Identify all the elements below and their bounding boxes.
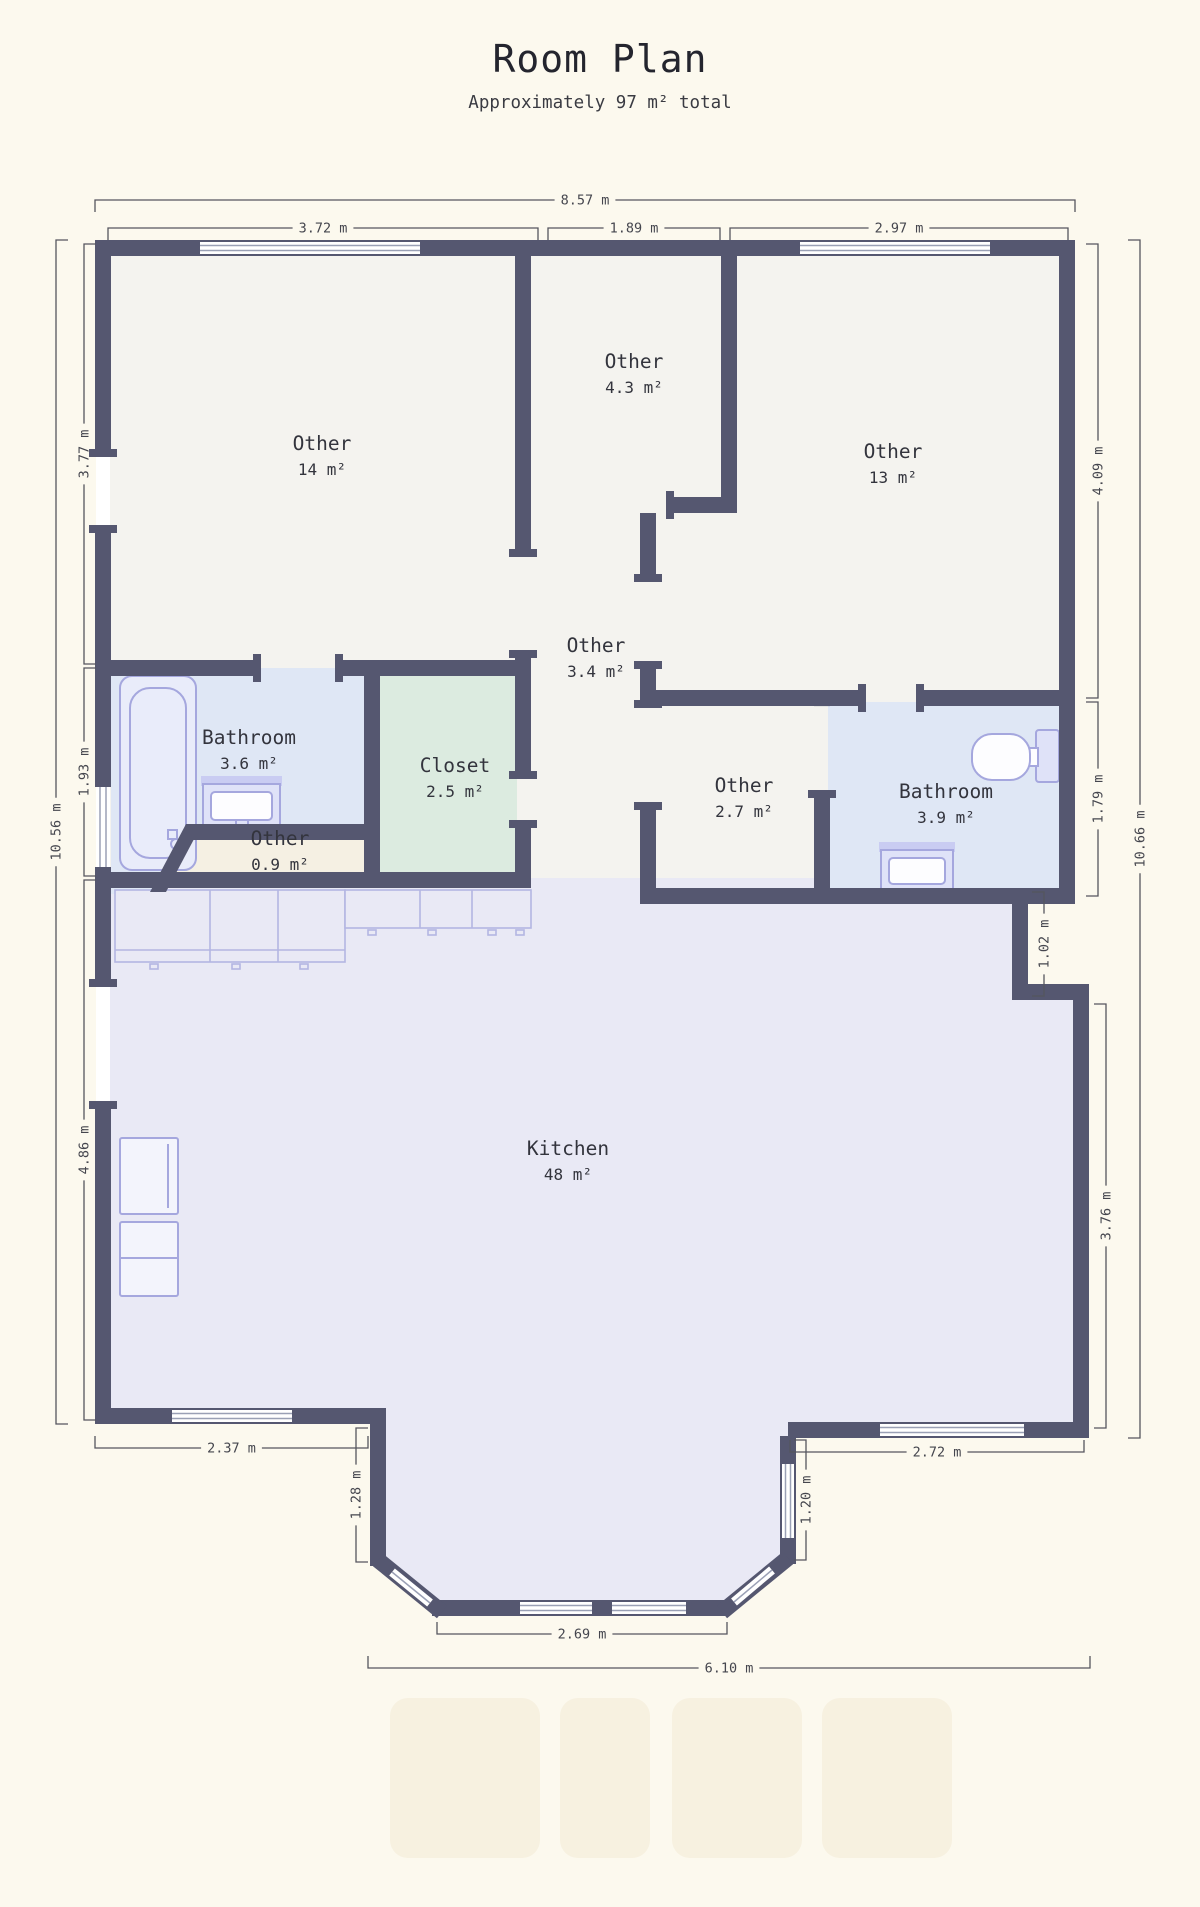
room-label-area: 3.4 m² [567, 662, 625, 681]
window [200, 242, 420, 254]
room-label-name: Bathroom [899, 780, 993, 803]
window [96, 787, 110, 867]
dimension-label: 4.86 m [77, 1126, 93, 1175]
room-label-area: 3.9 m² [917, 808, 975, 827]
dimension-label: 3.76 m [1099, 1192, 1115, 1241]
dimension-label: 3.72 m [299, 221, 348, 237]
room-label-name: Other [605, 350, 664, 373]
dimension-label: 6.10 m [705, 1661, 754, 1677]
dimension-label: 1.79 m [1091, 775, 1107, 824]
floor-plan: Room Plan Approximately 97 m² total [0, 0, 1200, 1907]
room-label-area: 2.7 m² [715, 802, 773, 821]
room-label-name: Other [251, 827, 310, 850]
window [800, 242, 990, 254]
dimension-label: 4.09 m [1091, 447, 1107, 496]
window [612, 1602, 686, 1614]
page-title: Room Plan [493, 37, 708, 81]
dimension-label: 10.66 m [1133, 811, 1149, 868]
dimension-label: 2.37 m [207, 1441, 256, 1457]
sink-icon [879, 842, 955, 892]
room-label-name: Other [567, 634, 626, 657]
dimension-label: 2.69 m [558, 1627, 607, 1643]
window [880, 1424, 1024, 1436]
dimension-label: 1.93 m [77, 748, 93, 797]
room-label-area: 0.9 m² [251, 855, 309, 874]
room-label-area: 4.3 m² [605, 378, 663, 397]
room-label-area: 14 m² [298, 460, 346, 479]
window [520, 1602, 592, 1614]
room-label-name: Bathroom [202, 726, 296, 749]
room-label-name: Other [293, 432, 352, 455]
page-subtitle: Approximately 97 m² total [468, 93, 731, 113]
dimension-label: 1.02 m [1037, 920, 1053, 969]
room-label-area: 3.6 m² [220, 754, 278, 773]
dimension-label: 1.20 m [799, 1476, 815, 1525]
dimension-label: 1.89 m [610, 221, 659, 237]
room-label-area: 13 m² [869, 468, 917, 487]
room-label-name: Other [715, 774, 774, 797]
window [782, 1464, 794, 1538]
dimension-label: 2.72 m [913, 1445, 962, 1461]
toilet-icon [972, 730, 1059, 782]
window [172, 1410, 292, 1422]
room-label-area: 48 m² [544, 1165, 592, 1184]
dimension-label: 1.28 m [349, 1471, 365, 1520]
dimension-label: 8.57 m [561, 193, 610, 209]
dimension-label: 2.97 m [875, 221, 924, 237]
dimension-label: 10.56 m [49, 804, 65, 861]
room-label-name: Kitchen [527, 1137, 609, 1160]
dimension-label: 3.77 m [77, 430, 93, 479]
opening [96, 455, 110, 527]
room-label-name: Closet [420, 754, 490, 777]
room-label-name: Other [864, 440, 923, 463]
room-label-area: 2.5 m² [426, 782, 484, 801]
sink-icon [201, 776, 282, 828]
opening [96, 987, 110, 1103]
